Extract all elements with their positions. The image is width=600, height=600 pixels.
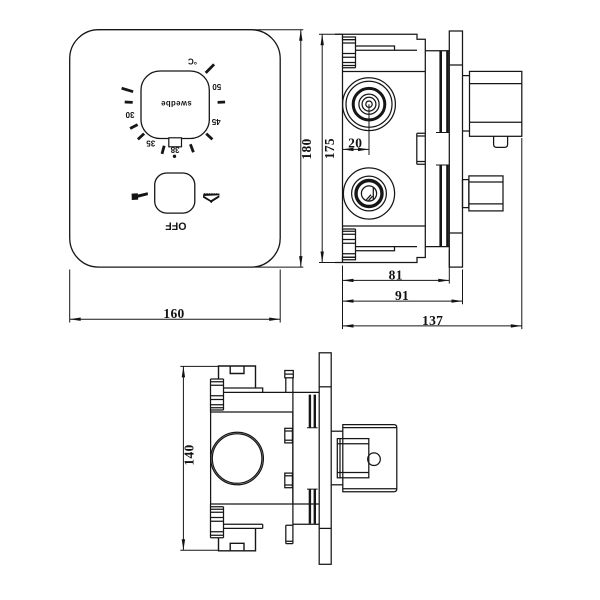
svg-text:38: 38	[170, 145, 179, 154]
svg-text:180: 180	[299, 138, 314, 159]
svg-text:°C: °C	[188, 57, 197, 66]
svg-text:160: 160	[163, 306, 184, 321]
svg-text:20: 20	[348, 135, 362, 150]
svg-text:91: 91	[395, 288, 409, 303]
svg-text:swedbe: swedbe	[160, 99, 191, 108]
svg-text:175: 175	[322, 138, 337, 159]
svg-text:45: 45	[211, 117, 220, 126]
svg-text:30: 30	[125, 110, 134, 119]
svg-text:81: 81	[389, 267, 403, 282]
svg-text:35: 35	[146, 139, 155, 148]
svg-text:50: 50	[212, 82, 221, 91]
svg-text:137: 137	[422, 313, 443, 328]
svg-text:140: 140	[181, 444, 196, 465]
svg-text:OFF: OFF	[165, 220, 187, 232]
